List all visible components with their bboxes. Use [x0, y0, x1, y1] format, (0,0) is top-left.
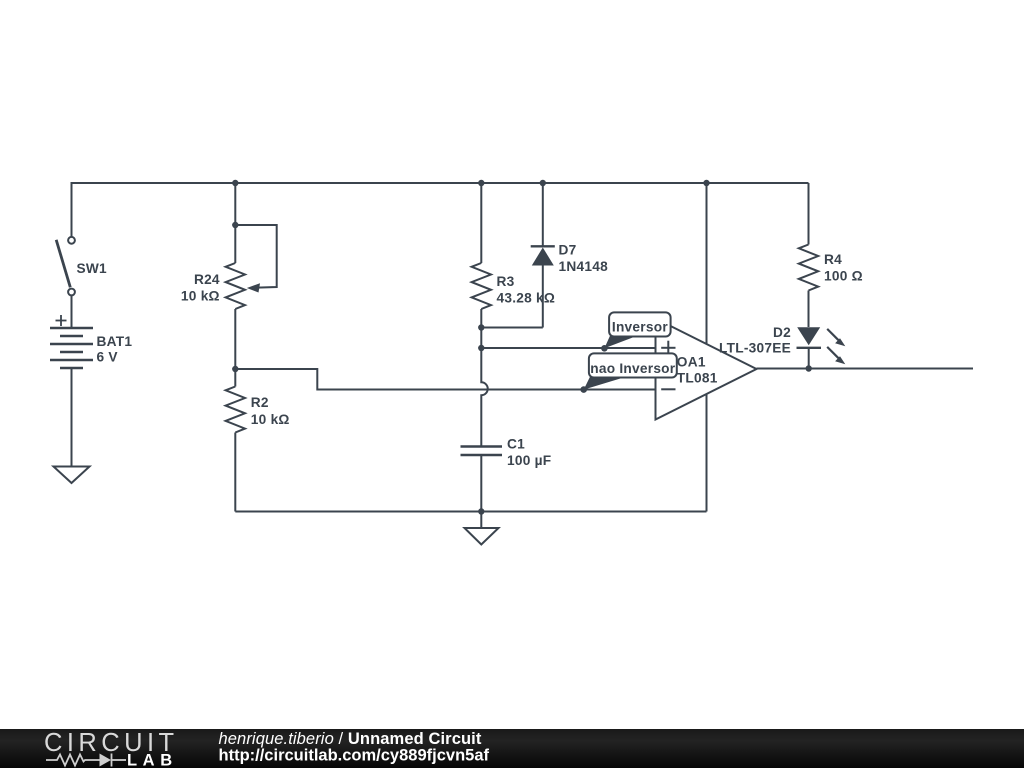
- svg-text:http://circuitlab.com/cy889fjc: http://circuitlab.com/cy889fjcvn5af: [219, 747, 490, 765]
- svg-text:D7: D7: [559, 243, 577, 258]
- svg-text:1N4148: 1N4148: [559, 259, 609, 274]
- svg-text:TL081: TL081: [677, 371, 718, 386]
- svg-text:R24: R24: [194, 272, 220, 287]
- svg-text:R4: R4: [824, 252, 842, 267]
- svg-text:OA1: OA1: [677, 355, 706, 370]
- svg-text:D2: D2: [773, 325, 791, 340]
- svg-text:6 V: 6 V: [97, 350, 119, 365]
- svg-text:C1: C1: [507, 437, 525, 452]
- svg-text:43.28 kΩ: 43.28 kΩ: [497, 291, 556, 306]
- svg-text:LAB: LAB: [127, 752, 178, 768]
- svg-text:R3: R3: [497, 274, 515, 289]
- svg-text:henrique.tiberio / Unnamed Cir: henrique.tiberio / Unnamed Circuit: [219, 730, 482, 748]
- svg-text:R2: R2: [251, 395, 269, 410]
- svg-text:Inversor: Inversor: [612, 319, 668, 334]
- svg-text:nao Inversor: nao Inversor: [590, 361, 676, 376]
- svg-text:100 µF: 100 µF: [507, 453, 551, 468]
- svg-text:10 kΩ: 10 kΩ: [251, 412, 290, 427]
- svg-text:SW1: SW1: [77, 261, 108, 276]
- svg-text:100 Ω: 100 Ω: [824, 269, 863, 284]
- svg-text:10 kΩ: 10 kΩ: [181, 289, 220, 304]
- svg-text:BAT1: BAT1: [97, 334, 133, 349]
- svg-text:LTL-307EE: LTL-307EE: [719, 340, 791, 355]
